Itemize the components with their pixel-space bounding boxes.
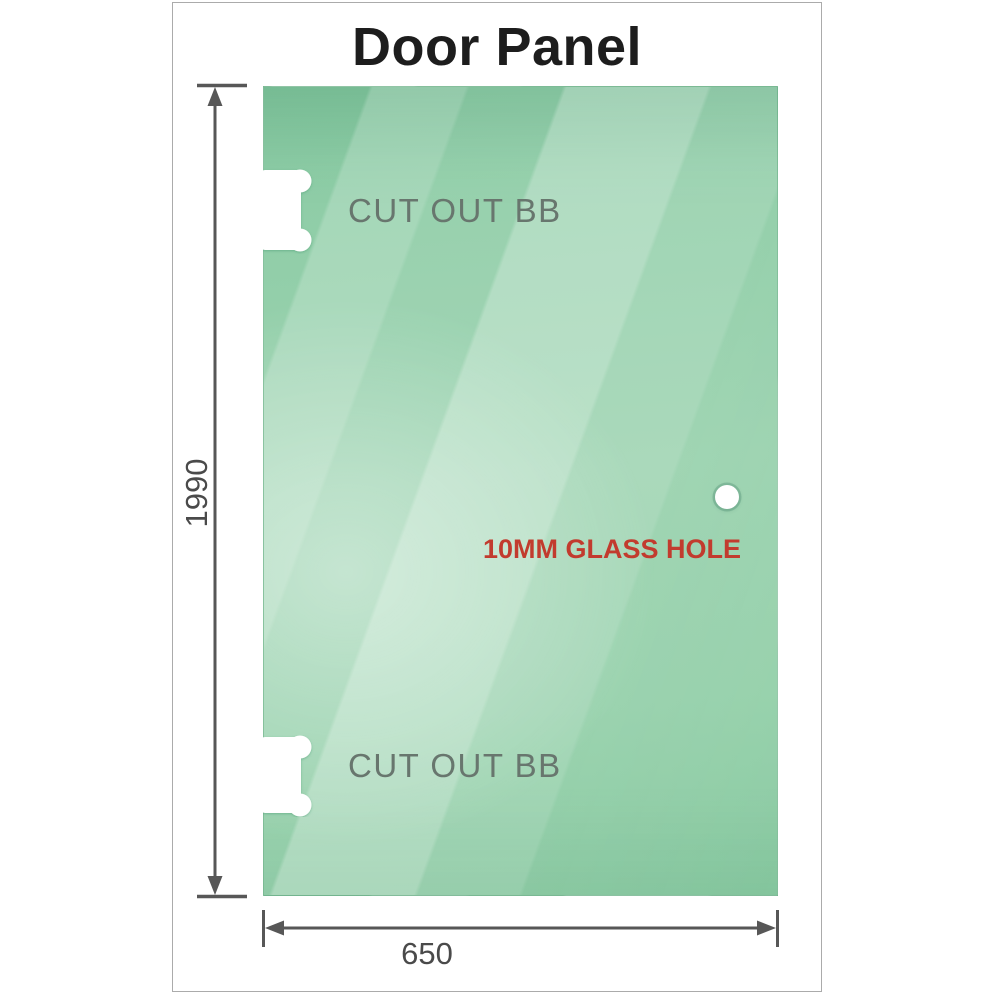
width-dimension-label: 650 [362,936,492,972]
glass-hole-icon [715,485,739,509]
cutout-top-label: CUT OUT BB [348,192,562,230]
height-dimension-label: 1990 [179,428,215,558]
page-title: Door Panel [172,16,822,78]
hinge-cutout-bottom-icon [263,735,315,817]
cutout-bottom-label: CUT OUT BB [348,747,562,785]
glass-hole-label: 10MM GLASS HOLE [452,534,772,565]
door-panel-diagram: Door Panel CUT OUT BB CUT OUT BB 10MM GL… [0,0,1000,1000]
hinge-cutout-top-icon [263,168,315,254]
